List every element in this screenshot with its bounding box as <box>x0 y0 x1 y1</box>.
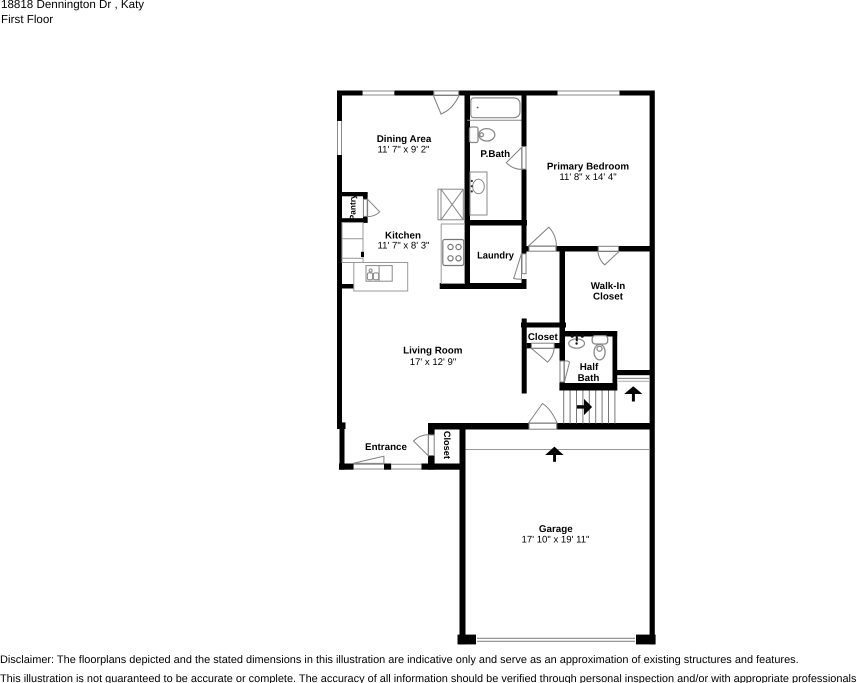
svg-text:P.Bath: P.Bath <box>480 149 510 160</box>
svg-text:17' 10" x 19' 11": 17' 10" x 19' 11" <box>522 534 590 545</box>
svg-text:Closet: Closet <box>442 431 452 459</box>
svg-text:Pantry: Pantry <box>347 194 357 220</box>
svg-text:11' 7" x 9' 2": 11' 7" x 9' 2" <box>378 145 430 156</box>
svg-text:Living Room: Living Room <box>403 346 463 357</box>
svg-text:Half: Half <box>580 362 599 373</box>
svg-text:Primary Bedroom: Primary Bedroom <box>547 162 630 173</box>
svg-text:Closet: Closet <box>593 292 624 303</box>
svg-text:Closet: Closet <box>528 332 559 343</box>
svg-text:Dining Area: Dining Area <box>377 134 432 145</box>
svg-text:Laundry: Laundry <box>477 250 514 261</box>
svg-text:11' 8" x 14' 4": 11' 8" x 14' 4" <box>559 172 616 183</box>
svg-text:Walk-In: Walk-In <box>591 281 625 292</box>
svg-text:Entrance: Entrance <box>365 442 407 453</box>
svg-text:17' x 12' 9": 17' x 12' 9" <box>410 357 457 368</box>
svg-text:11' 7" x 8' 3": 11' 7" x 8' 3" <box>378 240 430 251</box>
svg-text:Bath: Bath <box>578 373 600 384</box>
